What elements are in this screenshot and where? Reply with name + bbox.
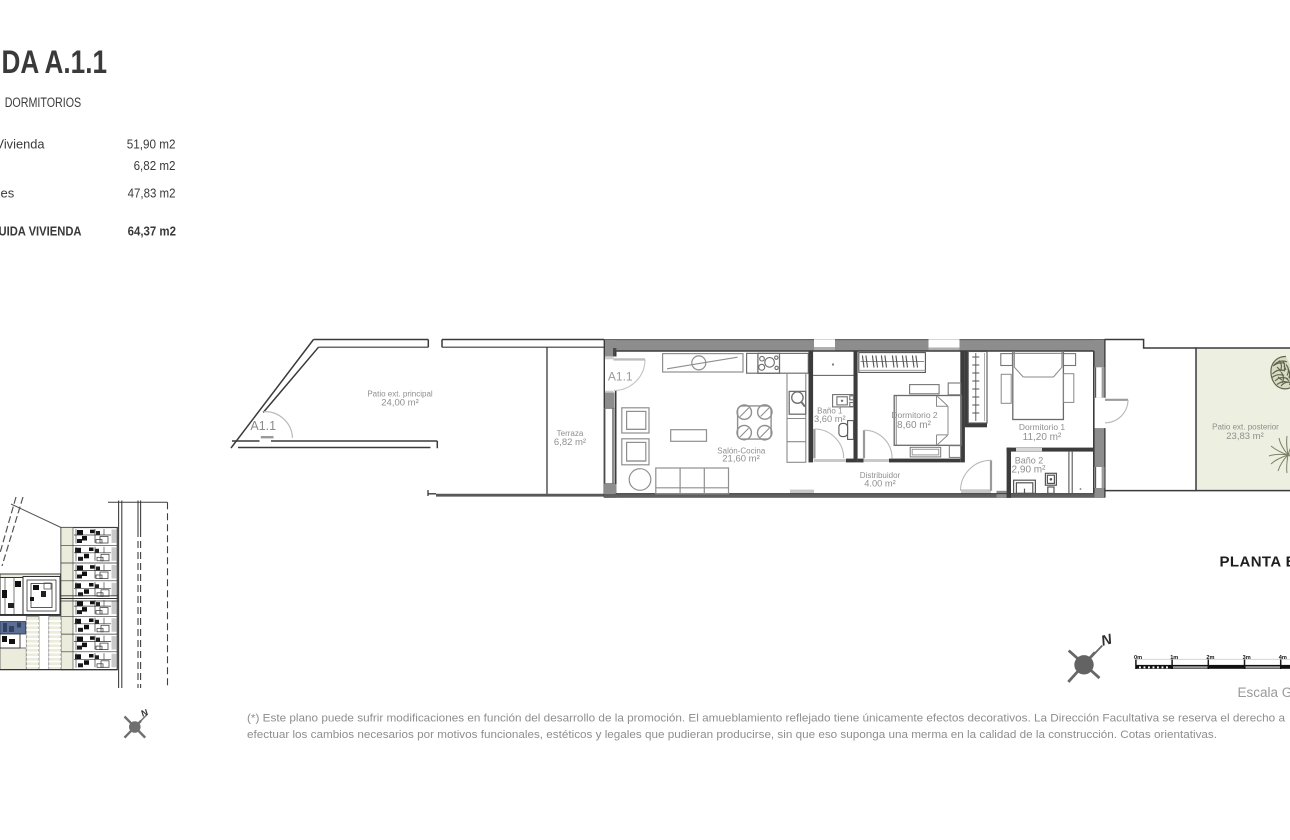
- svg-text:1m: 1m: [1170, 655, 1178, 661]
- svg-text:11,20 m²: 11,20 m²: [1023, 432, 1062, 443]
- svg-text:6,82 m²: 6,82 m²: [554, 437, 586, 448]
- svg-text:DA A.1.1: DA A.1.1: [2, 44, 108, 80]
- svg-text:Dormitorio 1: Dormitorio 1: [1019, 422, 1066, 432]
- svg-text:DORMITORIOS: DORMITORIOS: [5, 95, 82, 111]
- svg-text:es: es: [1, 185, 15, 200]
- svg-text:2,90 m²: 2,90 m²: [1012, 465, 1047, 476]
- svg-text:4m: 4m: [1279, 655, 1287, 661]
- svg-text:3m: 3m: [1243, 655, 1251, 661]
- svg-text:A1.1: A1.1: [250, 419, 276, 433]
- svg-text:51,90 m2: 51,90 m2: [127, 136, 176, 151]
- svg-text:PLANTA BAJA: PLANTA BAJA: [1220, 554, 1290, 571]
- svg-text:47,83 m2: 47,83 m2: [128, 185, 176, 200]
- svg-text:efectuar los cambios necesario: efectuar los cambios necesarios por moti…: [247, 729, 1217, 741]
- svg-text:(*) Este plano puede sufrir mo: (*) Este plano puede sufrir modificacion…: [247, 713, 1285, 725]
- svg-text:21,60 m²: 21,60 m²: [722, 453, 760, 464]
- svg-text:Escala Gráfica: Escala Gráfica: [1238, 685, 1290, 700]
- svg-text:23,83 m²: 23,83 m²: [1226, 431, 1264, 442]
- svg-text:6,82 m2: 6,82 m2: [134, 158, 176, 173]
- svg-text:24,00 m²: 24,00 m²: [381, 397, 419, 408]
- svg-text:64,37 m2: 64,37 m2: [128, 223, 176, 238]
- svg-text:0m: 0m: [1134, 655, 1142, 661]
- svg-text:3,60 m²: 3,60 m²: [814, 414, 846, 424]
- svg-text:Vivienda: Vivienda: [0, 136, 45, 151]
- svg-text:N: N: [140, 707, 149, 719]
- svg-text:Dormitorio 2: Dormitorio 2: [891, 410, 938, 420]
- svg-text:A1.1: A1.1: [608, 370, 633, 384]
- svg-text:UIDA VIVIENDA: UIDA VIVIENDA: [0, 223, 82, 238]
- svg-text:2m: 2m: [1206, 655, 1214, 661]
- svg-text:4.00 m²: 4.00 m²: [864, 479, 896, 489]
- svg-text:8,60 m²: 8,60 m²: [897, 420, 932, 431]
